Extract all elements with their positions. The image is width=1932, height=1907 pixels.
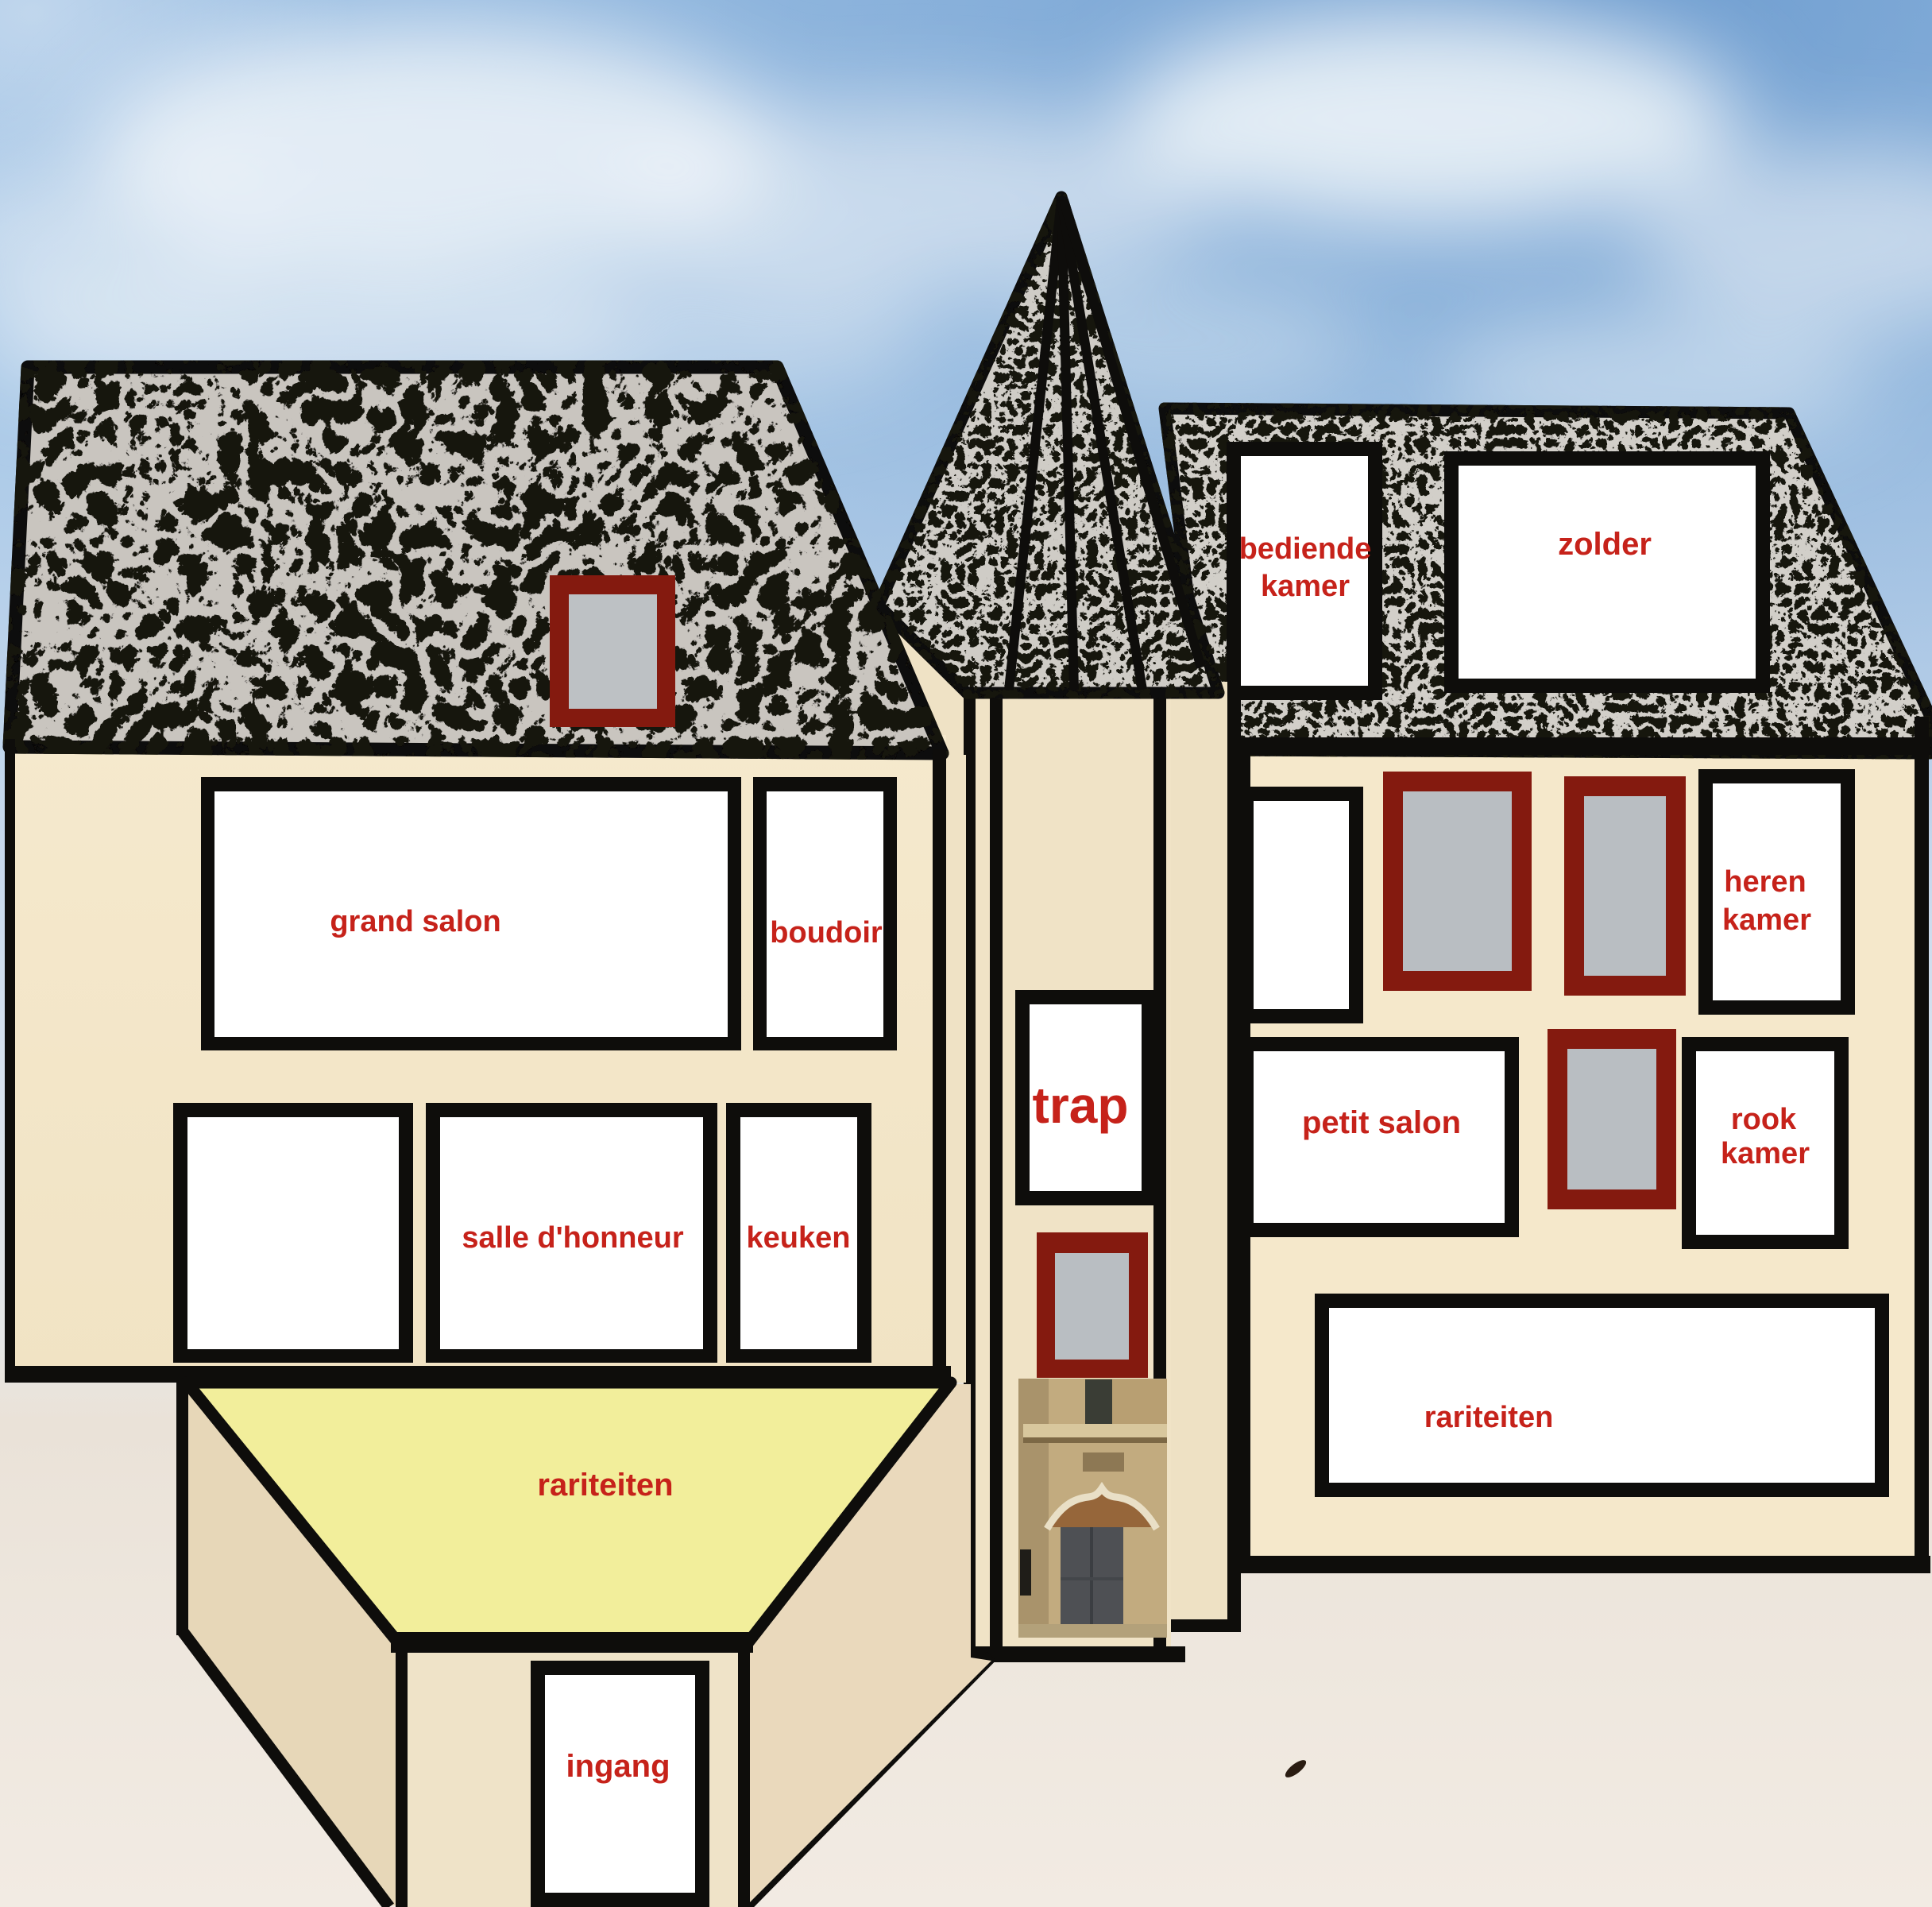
svg-text:zolder: zolder bbox=[1558, 527, 1652, 562]
svg-text:grand salon: grand salon bbox=[330, 905, 500, 938]
svg-text:rariteiten: rariteiten bbox=[537, 1468, 673, 1503]
svg-text:keuken: keuken bbox=[747, 1221, 851, 1255]
svg-text:trap: trap bbox=[1033, 1077, 1129, 1134]
svg-text:heren: heren bbox=[1724, 865, 1806, 899]
svg-text:ingang: ingang bbox=[566, 1749, 670, 1784]
svg-text:rariteiten: rariteiten bbox=[1424, 1401, 1554, 1434]
svg-text:kamer: kamer bbox=[1261, 570, 1350, 603]
svg-text:petit salon: petit salon bbox=[1302, 1105, 1461, 1140]
svg-text:kamer: kamer bbox=[1722, 903, 1811, 937]
svg-text:salle d'honneur: salle d'honneur bbox=[462, 1221, 684, 1255]
svg-text:bediende: bediende bbox=[1239, 532, 1372, 566]
svg-text:rook: rook bbox=[1731, 1103, 1797, 1136]
svg-text:boudoir: boudoir bbox=[770, 916, 883, 950]
svg-text:kamer: kamer bbox=[1721, 1137, 1810, 1170]
